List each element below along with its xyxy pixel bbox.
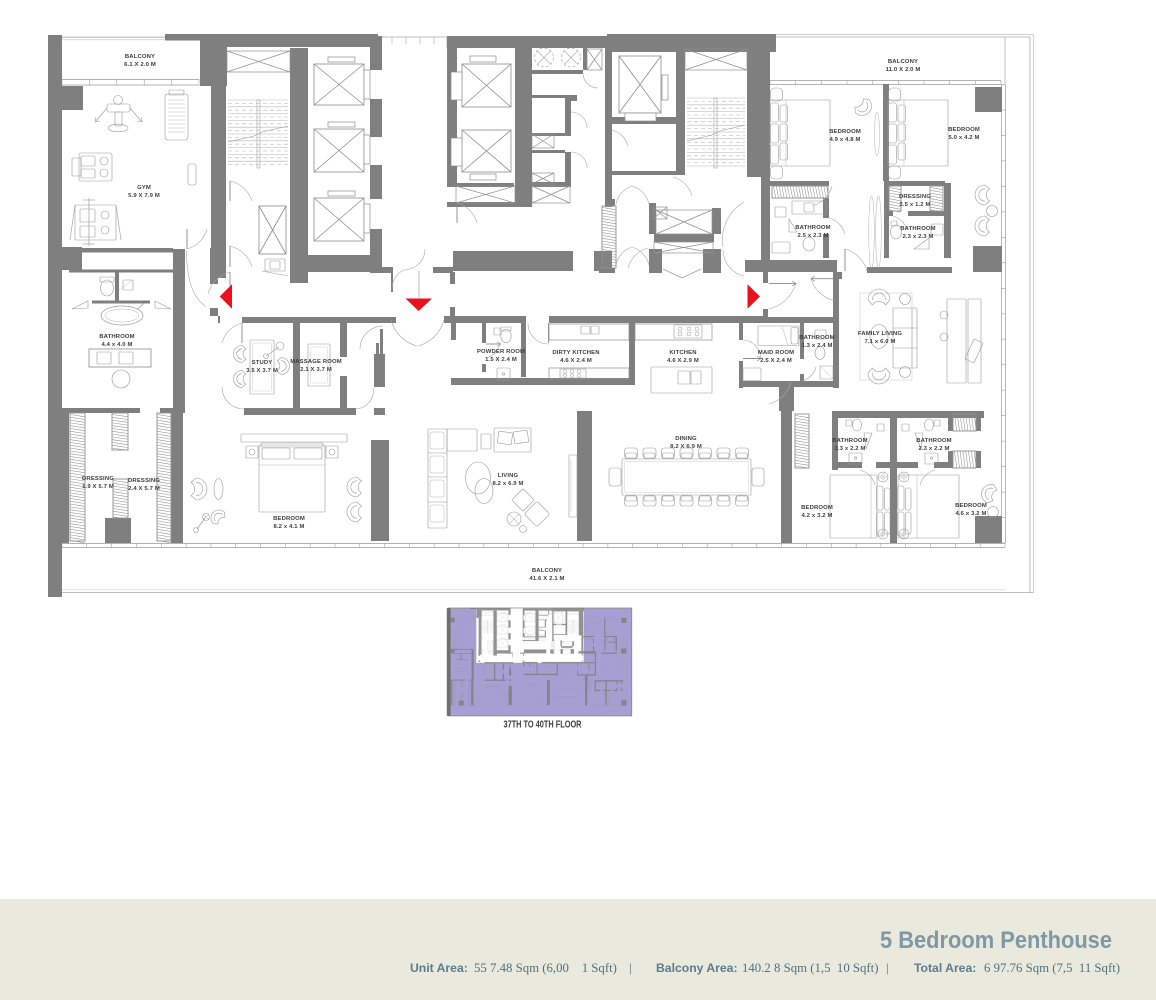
svg-text:MAID ROOM: MAID ROOM (758, 350, 794, 356)
svg-text:MASSAGE ROOM: MASSAGE ROOM (290, 359, 342, 365)
svg-text:GYM: GYM (137, 185, 151, 191)
svg-text:DIRTY KITCHEN: DIRTY KITCHEN (552, 350, 599, 356)
svg-text:BATHROOM: BATHROOM (799, 335, 834, 341)
svg-text:2.5 X 2.4 M: 2.5 X 2.4 M (760, 358, 792, 364)
svg-text:DRESSING: DRESSING (82, 476, 114, 482)
svg-text:2.5 x 2.3 M: 2.5 x 2.3 M (797, 233, 828, 239)
svg-text:5.0 x 4.2 M: 5.0 x 4.2 M (948, 135, 979, 141)
svg-text:STUDY: STUDY (252, 360, 273, 366)
svg-text:2.1 X 3.7 M: 2.1 X 3.7 M (300, 367, 332, 373)
svg-text:7.1 x 6.0 M: 7.1 x 6.0 M (864, 339, 895, 345)
svg-text:1.5 X 2.4 M: 1.5 X 2.4 M (485, 357, 517, 363)
svg-text:BEDROOM: BEDROOM (948, 127, 980, 133)
svg-text:BALCONY: BALCONY (888, 59, 918, 65)
svg-text:BATHROOM: BATHROOM (832, 438, 867, 444)
svg-text:55 7.48 Sqm (6,00 1 Sqft): 55 7.48 Sqm (6,00 1 Sqft) (474, 961, 617, 975)
svg-text:37TH TO 40TH FLOOR: 37TH TO 40TH FLOOR (504, 720, 582, 731)
svg-text:BATHROOM: BATHROOM (916, 438, 951, 444)
svg-text:8.2 x 4.1 M: 8.2 x 4.1 M (273, 524, 304, 530)
svg-text:4.9 x 4.8 M: 4.9 x 4.8 M (829, 137, 860, 143)
svg-text:2.3 x 2.2 M: 2.3 x 2.2 M (834, 446, 865, 452)
svg-text:BALCONY: BALCONY (125, 54, 155, 60)
svg-text:1.9 X 5.7 M: 1.9 X 5.7 M (82, 484, 114, 490)
svg-text:2.3 x 2.2 M: 2.3 x 2.2 M (918, 446, 949, 452)
svg-text:BATHROOM: BATHROOM (795, 225, 830, 231)
svg-text:DRESSING: DRESSING (128, 478, 160, 484)
svg-text:140.2 8 Sqm (1,5 10 Sqft): 140.2 8 Sqm (1,5 10 Sqft) (742, 961, 879, 975)
svg-text:BATHROOM: BATHROOM (900, 226, 935, 232)
svg-text:11.0 X 2.0 M: 11.0 X 2.0 M (886, 67, 921, 73)
svg-text:3.5 X 3.7 M: 3.5 X 3.7 M (246, 368, 278, 374)
svg-text:DRESSING: DRESSING (899, 194, 931, 200)
svg-text:4.4 x 4.0 M: 4.4 x 4.0 M (101, 342, 132, 348)
svg-text:KITCHEN: KITCHEN (669, 350, 696, 356)
svg-text:BEDROOM: BEDROOM (955, 503, 987, 509)
svg-text:BEDROOM: BEDROOM (273, 516, 305, 522)
svg-text:|: | (629, 961, 632, 975)
svg-text:BATHROOM: BATHROOM (99, 334, 134, 340)
svg-text:4.2 x 3.2 M: 4.2 x 3.2 M (801, 513, 832, 519)
svg-text:|: | (886, 961, 889, 975)
svg-text:LIVING: LIVING (498, 473, 519, 479)
svg-text:4.6 X 2.4 M: 4.6 X 2.4 M (560, 358, 592, 364)
svg-text:8.2 X 6.9 M: 8.2 X 6.9 M (670, 444, 702, 450)
svg-text:1.3 x 2.4 M: 1.3 x 2.4 M (801, 343, 832, 349)
svg-text:41.6 X 2.1 M: 41.6 X 2.1 M (529, 576, 564, 582)
svg-text:5.9 X 7.9 M: 5.9 X 7.9 M (128, 193, 160, 199)
svg-text:6 97.76 Sqm (7,5 11 Sqft): 6 97.76 Sqm (7,5 11 Sqft) (984, 961, 1120, 975)
svg-text:2.4 X 5.7 M: 2.4 X 5.7 M (128, 486, 160, 492)
svg-text:4.6 X 2.9 M: 4.6 X 2.9 M (667, 358, 699, 364)
svg-text:BALCONY: BALCONY (532, 568, 562, 574)
svg-text:DINING: DINING (675, 436, 697, 442)
svg-text:POWDER ROOM: POWDER ROOM (477, 349, 525, 355)
svg-text:Unit Area:: Unit Area: (410, 961, 468, 975)
svg-text:4.6 x 3.2 M: 4.6 x 3.2 M (955, 511, 986, 517)
svg-text:BEDROOM: BEDROOM (829, 129, 861, 135)
svg-text:8.2 x 6.9 M: 8.2 x 6.9 M (492, 481, 523, 487)
svg-text:Total Area:: Total Area: (914, 961, 976, 975)
svg-text:6.1 X 2.0 M: 6.1 X 2.0 M (124, 62, 156, 68)
svg-text:Balcony Area:: Balcony Area: (656, 961, 738, 975)
svg-text:2.5 x 1.2 M: 2.5 x 1.2 M (899, 202, 930, 208)
svg-text:5 Bedroom Penthouse: 5 Bedroom Penthouse (880, 927, 1112, 954)
svg-text:2.3 x 2.3 M: 2.3 x 2.3 M (902, 234, 933, 240)
svg-text:BEDROOM: BEDROOM (801, 505, 833, 511)
svg-text:FAMILY LIVING: FAMILY LIVING (858, 331, 902, 337)
